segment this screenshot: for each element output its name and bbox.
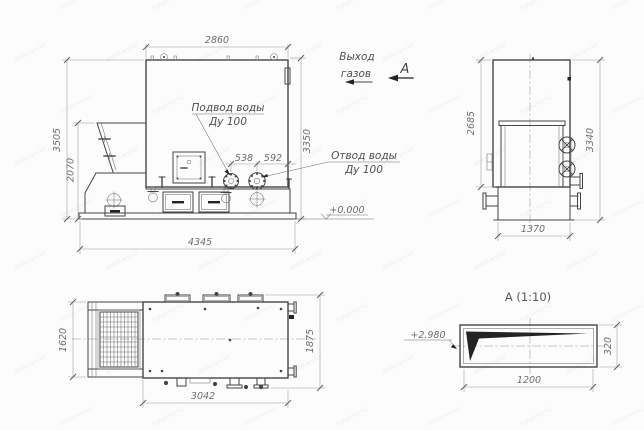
watermark-text: kotel-kv.kz: [519, 404, 554, 428]
dim-text: 2070: [66, 158, 77, 182]
watermark-text: kotel-kv.kz: [381, 40, 416, 64]
gas-outlet-label: Выход газов: [339, 51, 374, 85]
watermark-text: kotel-kv.kz: [59, 0, 94, 12]
watermark-text: kotel-kv.kz: [565, 248, 600, 272]
watermark-text: kotel-kv.kz: [105, 248, 140, 272]
watermark-text: kotel-kv.kz: [519, 92, 554, 116]
label-text: газов: [341, 68, 371, 80]
ash-door: [199, 192, 229, 212]
convective-block: [499, 121, 565, 187]
watermark-text: kotel-kv.kz: [197, 248, 232, 272]
section-level-mark: +2.980: [404, 330, 457, 349]
watermark-text: kotel-kv.kz: [59, 196, 94, 220]
boiler-body-side: [493, 60, 570, 187]
plan-flange: [288, 302, 296, 319]
watermark-text: kotel-kv.kz: [243, 196, 278, 220]
ash-box: [498, 187, 570, 220]
label-text: Отвод воды: [331, 150, 397, 162]
watermark-text: kotel-kv.kz: [381, 352, 416, 376]
dim-text: 3042: [191, 391, 215, 402]
side-flange: [571, 174, 583, 189]
top-hatch: [203, 292, 230, 302]
watermark-text: kotel-kv.kz: [519, 0, 554, 12]
watermark-text: kotel-kv.kz: [151, 0, 186, 12]
watermark-text: kotel-kv.kz: [0, 196, 2, 220]
watermark-text: kotel-kv.kz: [611, 196, 644, 220]
dim-text: 1875: [305, 329, 316, 353]
watermark-text: kotel-kv.kz: [611, 0, 644, 12]
arrow-left-icon: [388, 75, 398, 82]
watermark-text: kotel-kv.kz: [151, 300, 186, 324]
dim-base-length: 4345: [77, 221, 298, 254]
dim-total-height: 3505: [52, 57, 144, 222]
plan-view: 1620 1875 3042: [58, 292, 325, 408]
arrow-left-icon: [345, 79, 354, 84]
watermark-text: kotel-kv.kz: [289, 40, 324, 64]
watermark-text: kotel-kv.kz: [473, 248, 508, 272]
watermark-text: kotel-kv.kz: [0, 300, 2, 324]
dim-text: 2685: [466, 111, 477, 135]
dim-text: 3505: [52, 128, 63, 152]
dim-text: 3340: [585, 128, 596, 152]
label-text: Подвод воды: [192, 102, 265, 114]
watermark-text: kotel-kv.kz: [427, 196, 462, 220]
watermark-text: kotel-kv.kz: [611, 300, 644, 324]
label-text: Выход: [339, 51, 374, 63]
side-flange: [483, 193, 498, 209]
ground-level-mark: +0.000: [296, 205, 374, 219]
watermark-text: kotel-kv.kz: [519, 196, 554, 220]
watermark-text: kotel-kv.kz: [0, 404, 2, 428]
dim-section-height: 320: [599, 322, 622, 370]
front-view: 2860 3505 2070 3350: [52, 35, 313, 254]
section-cut-arrow: А: [388, 62, 413, 81]
watermark-text: kotel-kv.kz: [611, 404, 644, 428]
dim-body-height: 3350: [290, 55, 313, 222]
watermark-text: kotel-kv.kz: [289, 248, 324, 272]
watermark-text: kotel-kv.kz: [0, 0, 2, 12]
watermark-text: kotel-kv.kz: [59, 404, 94, 428]
watermark-text: kotel-kv.kz: [151, 196, 186, 220]
watermark-text: kotel-kv.kz: [427, 92, 462, 116]
dim-text: 1370: [521, 224, 545, 235]
top-hatch: [238, 292, 263, 302]
boiler-drawing: kotel-kv.kzkotel-kv.kzkotel-kv.kzkotel-k…: [0, 0, 644, 430]
dim-side-base-width: 1370: [495, 222, 573, 241]
watermark-text: kotel-kv.kz: [473, 144, 508, 168]
label-text: Ду 100: [208, 116, 247, 128]
watermark-text: kotel-kv.kz: [565, 352, 600, 376]
level-text: +2.980: [410, 330, 445, 341]
top-hatch: [165, 292, 190, 302]
watermark-text: kotel-kv.kz: [335, 404, 370, 428]
dim-text: 320: [603, 337, 614, 355]
level-text: +0.000: [329, 205, 364, 216]
dim-text: 538: [235, 153, 253, 164]
bottom-hatch-plan: [190, 378, 210, 383]
watermark-text: kotel-kv.kz: [151, 404, 186, 428]
bottom-flange-pipe: [227, 378, 242, 388]
watermark-text: kotel-kv.kz: [335, 92, 370, 116]
annotations: Выход газов А Отвод воды Ду 100 +0.000: [262, 51, 414, 219]
dim-text: 4345: [188, 237, 212, 248]
watermark-text: kotel-kv.kz: [243, 300, 278, 324]
section-letter: А: [400, 62, 410, 77]
watermark-text: kotel-kv.kz: [13, 248, 48, 272]
dim-text: 1200: [517, 375, 541, 386]
watermark-text: kotel-kv.kz: [427, 300, 462, 324]
watermark-text: kotel-kv.kz: [427, 404, 462, 428]
watermark-text: kotel-kv.kz: [59, 300, 94, 324]
watermark-text: kotel-kv.kz: [335, 0, 370, 12]
dim-side-total-height: 3340: [572, 57, 605, 223]
watermark-text: kotel-kv.kz: [243, 404, 278, 428]
watermark-text: kotel-kv.kz: [381, 248, 416, 272]
watermark-text: kotel-kv.kz: [13, 40, 48, 64]
dim-text: 592: [264, 153, 282, 164]
fuel-hopper: [97, 123, 146, 172]
label-text: Ду 100: [344, 164, 383, 176]
dim-text: 3350: [302, 129, 313, 153]
watermark-text: kotel-kv.kz: [151, 92, 186, 116]
section-title: А (1:10): [505, 290, 551, 304]
watermark-text: kotel-kv.kz: [427, 0, 462, 12]
watermark-text: kotel-kv.kz: [197, 352, 232, 376]
watermark-text: kotel-kv.kz: [13, 144, 48, 168]
dim-text: 2860: [205, 35, 229, 46]
technical-drawing-sheet: kotel-kv.kzkotel-kv.kzkotel-kv.kzkotel-k…: [0, 0, 644, 430]
bottom-pipe: [177, 378, 186, 386]
watermark-text: kotel-kv.kz: [13, 352, 48, 376]
watermark-text: kotel-kv.kz: [473, 352, 508, 376]
section-view: А (1:10) +2.980 320 1200: [404, 290, 622, 392]
watermark-text: kotel-kv.kz: [0, 92, 2, 116]
watermark-text: kotel-kv.kz: [59, 92, 94, 116]
side-flange: [570, 193, 581, 209]
dim-text: 1620: [58, 328, 69, 352]
dim-flange-spacing: 538 592: [226, 153, 296, 172]
watermark-text: kotel-kv.kz: [335, 300, 370, 324]
watermark-text: kotel-kv.kz: [611, 92, 644, 116]
watermark-text: kotel-kv.kz: [243, 0, 278, 12]
